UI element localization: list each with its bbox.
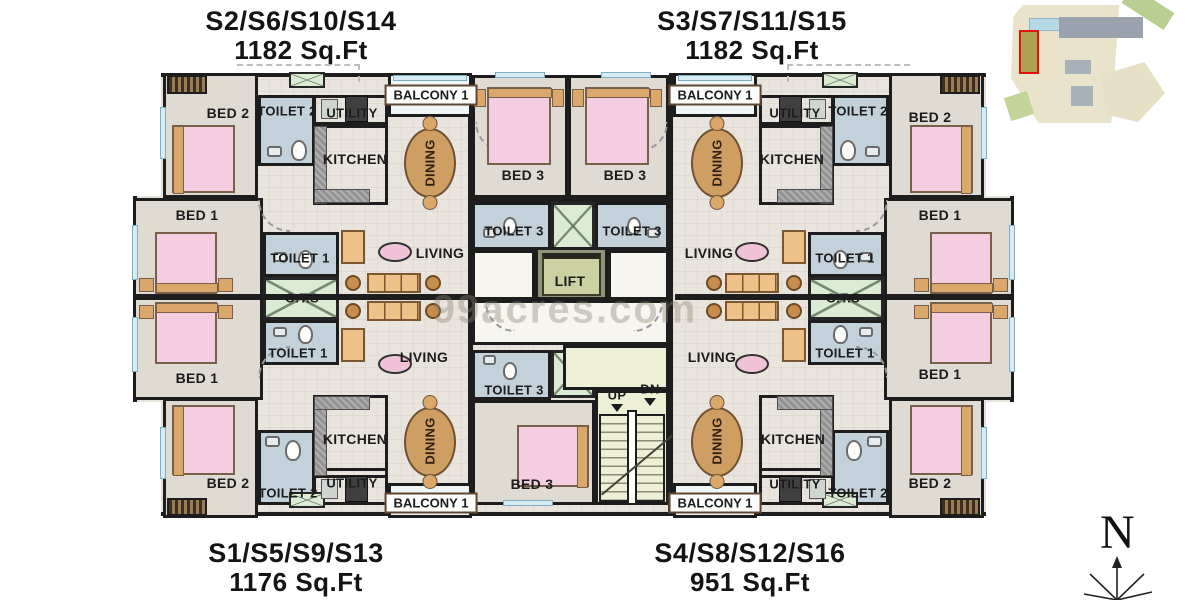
room-label-bed3: BED 3 (502, 167, 545, 183)
corner-notch (133, 70, 161, 196)
toilet-sink (273, 327, 287, 337)
nightstand (914, 278, 929, 292)
toilet-sink (867, 436, 882, 447)
bed-headboard (931, 303, 993, 313)
nightstand (218, 305, 233, 319)
side-table (345, 303, 361, 319)
room-label-bed1: BED 1 (176, 370, 219, 386)
room-label-toilet3: TOILET 3 (602, 224, 661, 239)
bed-headboard (156, 283, 218, 293)
wardrobe (940, 498, 980, 516)
stair-stringer (627, 410, 637, 505)
window (981, 427, 987, 479)
nightstand (552, 89, 564, 107)
room-label-ots: O.T.S (826, 291, 860, 306)
balcony-label-box: BALCONY 1 (669, 85, 762, 106)
duct-box (822, 72, 858, 88)
unit-numbers: S1/S5/S9/S13 (146, 538, 446, 568)
toilet-sink (267, 146, 282, 157)
room-label-utility: UTILITY (769, 106, 820, 121)
armchair (782, 230, 806, 264)
unit-area: 951 Sq.Ft (600, 568, 900, 596)
window (1009, 317, 1015, 372)
toilet-sink (483, 355, 496, 365)
room-label-kitchen: KITCHEN (323, 431, 387, 447)
compass: N (1078, 508, 1188, 600)
coffee-table (735, 242, 769, 262)
sofa (725, 301, 779, 321)
toilet-wc (503, 362, 517, 380)
balcony-label-box: BALCONY 1 (385, 493, 478, 514)
room-label-dining: DINING (710, 139, 725, 186)
bed-headboard (577, 426, 588, 488)
corner-notch (986, 402, 1014, 518)
room-label-bed3: BED 3 (604, 167, 647, 183)
side-table (786, 303, 802, 319)
room-label-living: LIVING (416, 245, 464, 261)
room-label-bed2: BED 2 (207, 475, 250, 491)
room-label-kitchen: KITCHEN (323, 151, 387, 167)
window (160, 107, 166, 159)
balcony-label: BALCONY 1 (678, 88, 753, 103)
floor-plan-canvas: S2/S6/S10/S14 1182 Sq.Ft S3/S7/S11/S15 1… (0, 0, 1200, 600)
room-label-bed1: BED 1 (919, 366, 962, 382)
window (601, 72, 651, 78)
bed-headboard (156, 303, 218, 313)
room-label-utility: UTILITY (769, 477, 820, 492)
room-label-kitchen: KITCHEN (761, 431, 825, 447)
room-label-bed2: BED 2 (909, 475, 952, 491)
nightstand (218, 278, 233, 292)
unit-title-top-left: S2/S6/S10/S14 1182 Sq.Ft (151, 6, 451, 64)
bed-headboard (173, 126, 184, 194)
wardrobe (167, 75, 207, 94)
bed-icon (155, 232, 217, 294)
window (160, 427, 166, 479)
sofa (367, 301, 421, 321)
kitchen-counter (777, 189, 833, 203)
kitchen-counter (314, 189, 370, 203)
wardrobe (940, 75, 980, 94)
room-label-toilet2: TOILET 2 (828, 104, 887, 119)
balcony-label-box: BALCONY 1 (669, 493, 762, 514)
stairs-up-label: UP (608, 388, 627, 403)
stair-dn-arrow (644, 398, 656, 406)
coffee-table (735, 354, 769, 374)
room-label-living: LIVING (688, 349, 736, 365)
unit-numbers: S3/S7/S11/S15 (602, 6, 902, 36)
armchair (341, 230, 365, 264)
nightstand (572, 89, 584, 107)
room-label-bed1: BED 1 (919, 207, 962, 223)
window (132, 317, 138, 372)
nightstand (993, 278, 1008, 292)
site-building-small (1065, 60, 1091, 74)
toilet-wc (291, 140, 307, 161)
room-label-toilet1: TOILET 1 (270, 251, 329, 266)
room-label-dining: DINING (423, 139, 438, 186)
room-label-bed2: BED 2 (207, 105, 250, 121)
toilet-sink (265, 436, 280, 447)
window (495, 72, 545, 78)
bed-headboard (961, 126, 972, 194)
room-label-bed1: BED 1 (176, 207, 219, 223)
duct-shaft-top (551, 202, 595, 250)
window (503, 500, 553, 506)
toilet-wc (285, 440, 301, 461)
toilet-wc (298, 325, 313, 344)
toilet-sink (865, 146, 880, 157)
bed-headboard (931, 283, 993, 293)
room-label-dining: DINING (423, 417, 438, 464)
bed-icon (172, 125, 235, 193)
bed-icon (585, 87, 649, 165)
stairs-dn-label: DN (640, 382, 659, 397)
unit-area: 1182 Sq.Ft (151, 36, 451, 64)
nightstand (914, 305, 929, 319)
room-label-bed2: BED 2 (909, 109, 952, 125)
room-label-toilet2: TOILET 2 (258, 486, 317, 501)
window (132, 225, 138, 280)
nightstand (650, 89, 662, 107)
room-label-bed3: BED 3 (511, 476, 554, 492)
window (1009, 225, 1015, 280)
side-table (706, 275, 722, 291)
room-label-toilet1: TOILET 1 (268, 346, 327, 361)
room-label-toilet2: TOILET 2 (257, 104, 316, 119)
bed-icon (155, 302, 217, 364)
bed-icon (930, 302, 992, 364)
site-building (1059, 17, 1143, 38)
room-label-toilet1: TOILET 1 (815, 251, 874, 266)
room-label-utility: UTILITY (326, 106, 377, 121)
unit-area: 1182 Sq.Ft (602, 36, 902, 64)
balcony-label: BALCONY 1 (394, 496, 469, 511)
compass-north-label: N (1100, 508, 1135, 558)
bed-headboard (488, 88, 552, 98)
toilet-sink (859, 327, 873, 337)
unit-numbers: S2/S6/S10/S14 (151, 6, 451, 36)
armchair (341, 328, 365, 362)
unit-numbers: S4/S8/S12/S16 (600, 538, 900, 568)
site-building-small (1071, 86, 1093, 106)
room-label-toilet3: TOILET 3 (484, 224, 543, 239)
site-map (1005, 2, 1173, 128)
balcony-rail (678, 75, 752, 81)
room-label-toilet1: TOILET 1 (815, 346, 874, 361)
side-table (345, 275, 361, 291)
bed-headboard (961, 406, 972, 476)
bed-icon (910, 125, 973, 193)
site-highlighted-plot (1019, 30, 1039, 74)
room-label-ots: O.T.S (285, 291, 319, 306)
unit-title-bottom-right: S4/S8/S12/S16 951 Sq.Ft (600, 538, 900, 596)
unit-title-top-right: S3/S7/S11/S15 1182 Sq.Ft (602, 6, 902, 64)
side-table (786, 275, 802, 291)
window (981, 107, 987, 159)
armchair (782, 328, 806, 362)
sofa (367, 273, 421, 293)
side-table (706, 303, 722, 319)
room-label-toilet2: TOILET 2 (828, 486, 887, 501)
room-label-living: LIVING (400, 349, 448, 365)
toilet-wc (840, 140, 856, 161)
room-label-kitchen: KITCHEN (760, 151, 824, 167)
duct-box (289, 72, 325, 88)
nightstand (139, 278, 154, 292)
watermark: 99acres.com (433, 288, 697, 333)
kitchen-counter (314, 396, 370, 410)
coffee-table (378, 242, 412, 262)
bed-icon (910, 405, 973, 475)
bed-icon (172, 405, 235, 475)
nightstand (993, 305, 1008, 319)
kitchen-counter (777, 396, 833, 410)
unit-area: 1176 Sq.Ft (146, 568, 446, 596)
stair-up-arrow (611, 404, 623, 412)
room-label-dining: DINING (710, 417, 725, 464)
bed-icon (930, 232, 992, 294)
room-label-utility: UTILITY (326, 476, 377, 491)
unit-title-bottom-left: S1/S5/S9/S13 1176 Sq.Ft (146, 538, 446, 596)
balcony-label: BALCONY 1 (678, 496, 753, 511)
bed-headboard (586, 88, 650, 98)
room-label-living: LIVING (685, 245, 733, 261)
wardrobe (167, 498, 207, 516)
corner-notch (133, 402, 161, 518)
balcony-label-box: BALCONY 1 (385, 85, 478, 106)
bed-headboard (173, 406, 184, 476)
balcony-label: BALCONY 1 (394, 88, 469, 103)
nightstand (139, 305, 154, 319)
sofa (725, 273, 779, 293)
room-label-toilet3: TOILET 3 (484, 383, 543, 398)
balcony-rail (393, 75, 467, 81)
bed-icon (487, 87, 551, 165)
toilet-wc (833, 325, 848, 344)
toilet-wc (846, 440, 862, 461)
